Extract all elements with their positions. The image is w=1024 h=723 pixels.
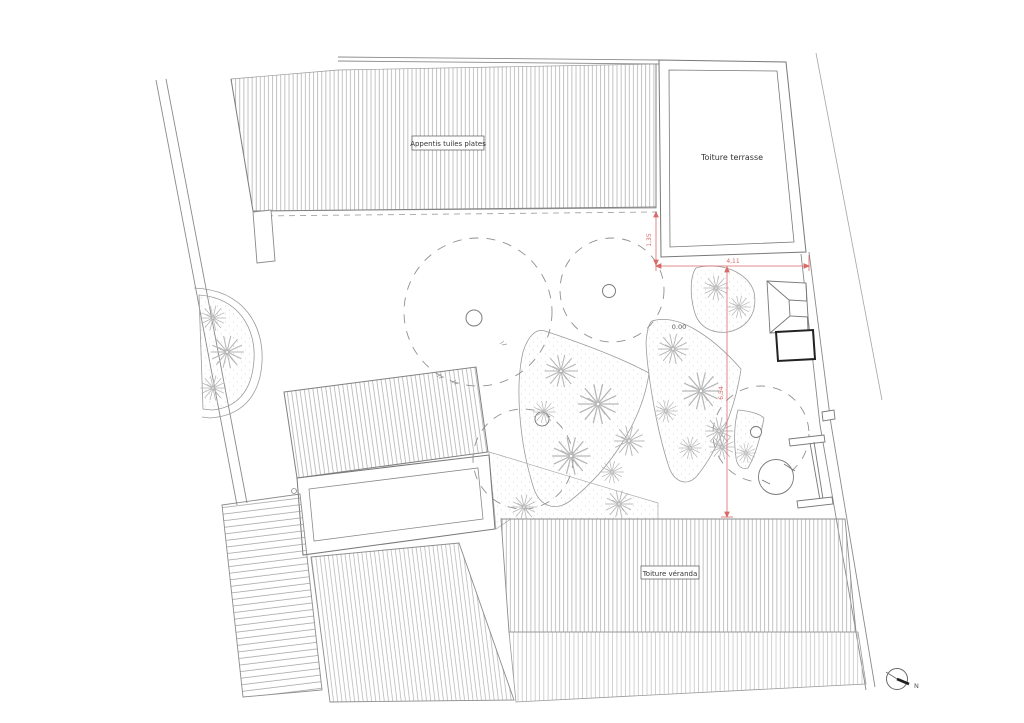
dim-garden-vertical: 6,54 <box>718 386 725 400</box>
bench-lower <box>797 497 833 508</box>
bench-upper <box>789 435 825 446</box>
roof-bottom-left <box>311 543 514 702</box>
gutter-dashed-line <box>256 212 657 216</box>
roof-lower <box>509 632 866 702</box>
label-appentis: Appentis tuiles plates <box>410 136 486 150</box>
label-veranda: Toiture véranda <box>642 570 698 578</box>
pavilion-hip-roof <box>767 281 808 333</box>
garden-furniture <box>759 410 836 508</box>
dim-terrasse-bottom: 4,11 <box>726 258 740 265</box>
wall-top <box>338 57 660 64</box>
bed-left <box>199 295 254 410</box>
garden-table <box>759 460 794 495</box>
label-appentis-text: Appentis tuiles plates <box>410 140 486 148</box>
boundary-left <box>156 79 247 505</box>
boundary-outer-line <box>816 53 882 400</box>
roof-veranda: Toiture véranda <box>501 519 856 632</box>
bed-right-small <box>735 410 764 469</box>
boundary-step <box>822 410 835 421</box>
building-middle <box>284 367 495 555</box>
north-arrow: N <box>886 669 919 691</box>
level-marker: 0.00 <box>672 323 686 331</box>
dim-terrasse-left: 1,35 <box>646 233 653 247</box>
post <box>253 210 275 263</box>
site-plan-drawing: Appentis tuiles plates Toiture terrasse … <box>0 0 1024 723</box>
label-terrasse: Toiture terrasse <box>700 153 763 162</box>
corner-marker <box>292 489 297 494</box>
north-label: N <box>914 682 919 690</box>
shed-black-outline <box>776 330 815 361</box>
site-plan-sheet: Appentis tuiles plates Toiture terrasse … <box>0 0 1024 723</box>
bed-right-circle <box>751 427 762 438</box>
roof-appentis <box>231 64 657 263</box>
